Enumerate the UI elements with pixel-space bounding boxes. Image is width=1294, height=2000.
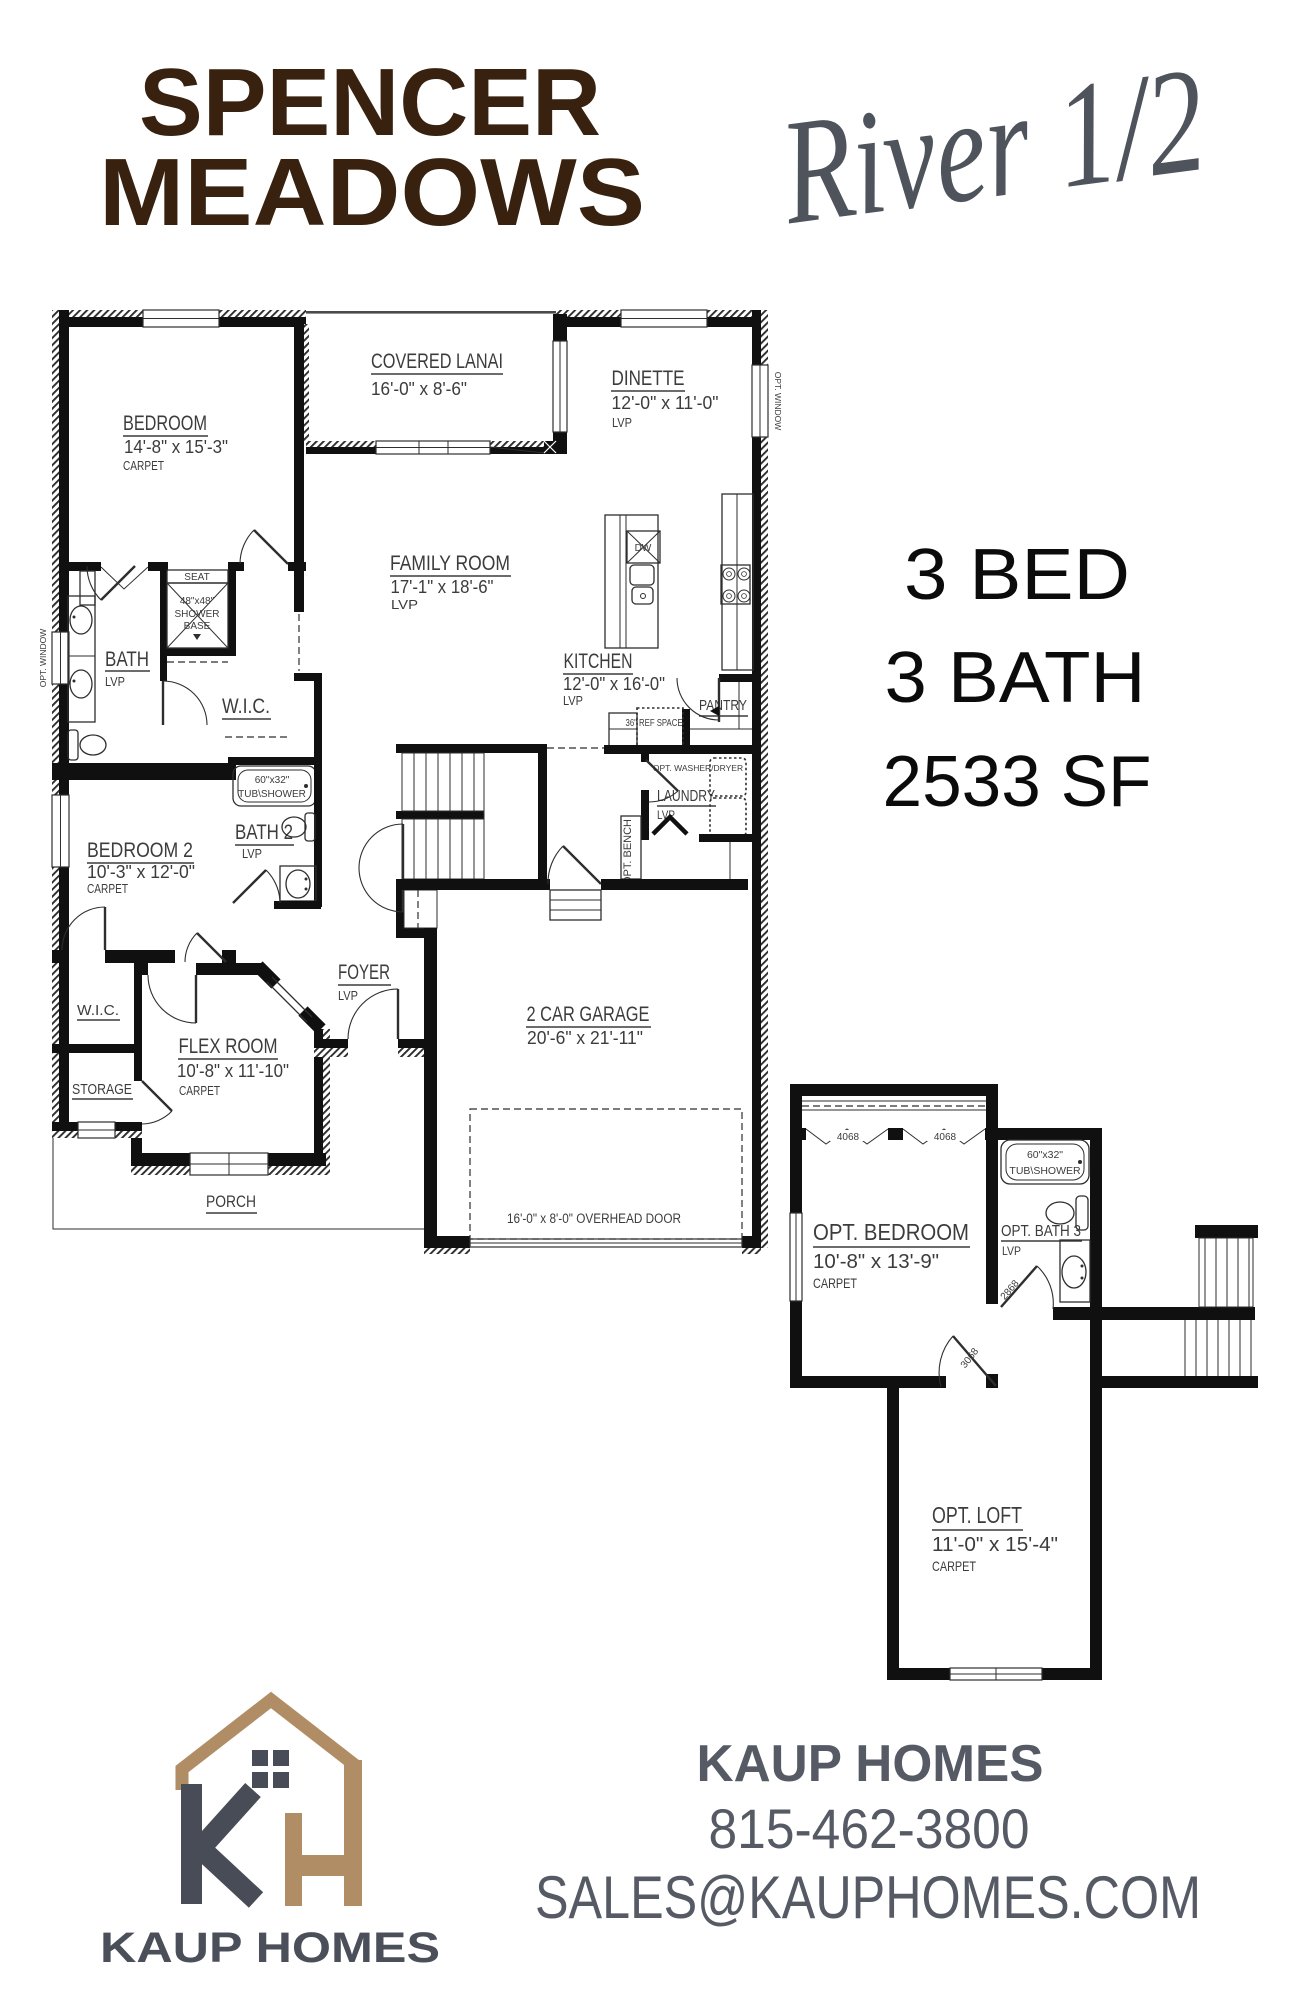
svg-text:10'-8" x 13'-9": 10'-8" x 13'-9" xyxy=(813,1251,939,1273)
svg-text:LVP: LVP xyxy=(1002,1244,1021,1258)
svg-text:4068: 4068 xyxy=(934,1132,957,1143)
svg-text:OPT. LOFT: OPT. LOFT xyxy=(932,1502,1022,1528)
svg-text:60"x32": 60"x32" xyxy=(1027,1149,1063,1161)
svg-text:OPT. BEDROOM: OPT. BEDROOM xyxy=(813,1219,969,1245)
svg-text:4068: 4068 xyxy=(837,1132,860,1143)
svg-text:OPT. BATH 3: OPT. BATH 3 xyxy=(1001,1223,1081,1240)
svg-text:11'-0" x 15'-4": 11'-0" x 15'-4" xyxy=(932,1534,1058,1556)
svg-text:2868: 2868 xyxy=(999,1278,1022,1302)
svg-text:CARPET: CARPET xyxy=(932,1558,976,1574)
svg-text:CARPET: CARPET xyxy=(813,1275,857,1291)
svg-text:TUB\SHOWER: TUB\SHOWER xyxy=(1009,1165,1081,1177)
